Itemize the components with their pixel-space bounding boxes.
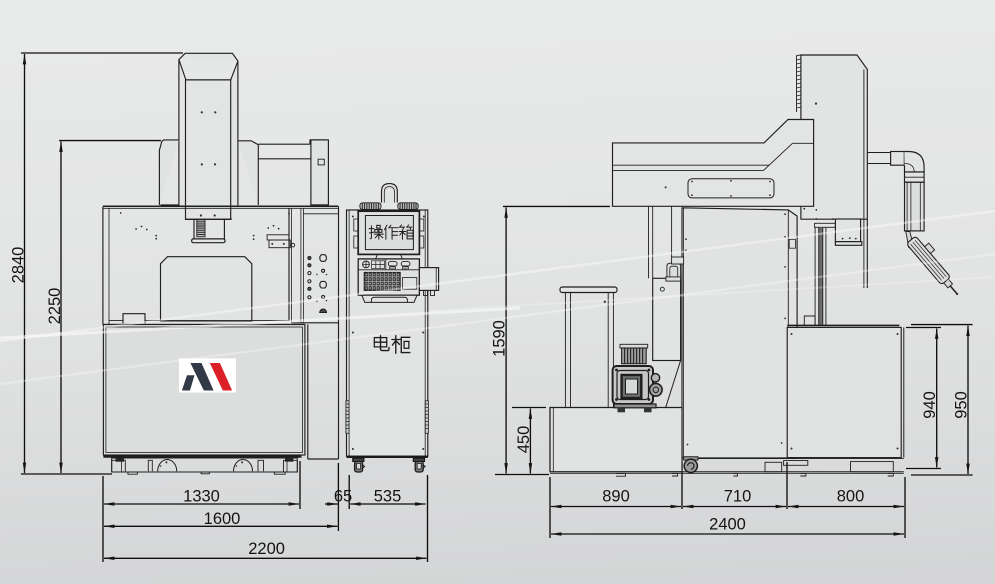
svg-text:890: 890 — [602, 488, 630, 506]
svg-text:450: 450 — [515, 426, 533, 454]
svg-text:710: 710 — [724, 488, 752, 506]
svg-text:940: 940 — [921, 391, 939, 419]
svg-text:535: 535 — [374, 488, 402, 506]
svg-text:2200: 2200 — [248, 540, 285, 558]
svg-text:950: 950 — [953, 391, 971, 419]
svg-text:1590: 1590 — [491, 320, 509, 357]
svg-text:2250: 2250 — [46, 288, 64, 325]
svg-text:1600: 1600 — [204, 510, 241, 528]
svg-text:65: 65 — [334, 488, 352, 506]
svg-text:800: 800 — [837, 488, 865, 506]
svg-text:1330: 1330 — [183, 488, 220, 506]
svg-text:2400: 2400 — [709, 516, 746, 534]
svg-text:2840: 2840 — [10, 247, 28, 284]
